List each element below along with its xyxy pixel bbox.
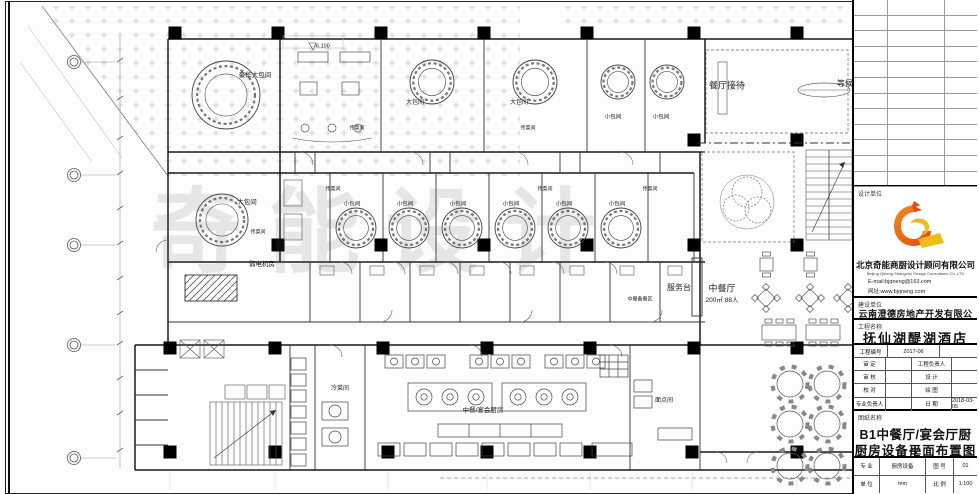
drafter-label: 绘 图 [912,384,952,396]
company-website: 网址:www.bjqneng.com [868,287,925,295]
sheet-no-value: 01 [954,458,977,475]
drawing-sheet: 奇能设计 -6.100豪华大包间大包间大包间小包间小包间餐厅接待等候传菜间传菜间… [0,0,979,494]
unit-label: 单 位 [854,476,880,494]
reception-furniture [706,50,850,133]
pm-label: 工程负责人 [912,358,952,370]
discipline-label: 专 业 [854,458,880,475]
revision-row [854,0,977,16]
lead-value [886,398,912,411]
sheet-name-line2: 厨房设备平面布置图 [854,440,977,459]
personnel-grid: 审 定 工程负责人 审 核 设 计 校 对 绘 图 专业负责人 日 期 [854,358,977,411]
storeroom-fixtures [320,266,682,275]
revision-col-divider [887,0,888,185]
company-logo [854,199,977,262]
drafter-value [952,384,977,396]
exterior-hatch [20,6,846,176]
approve-label: 审 定 [854,358,886,370]
design-unit-section: 设计单位 北京奇能商厨设计顾 [854,187,977,298]
build-unit-section: 建设单位 云南澄德房地产开发有限公司 [854,298,977,320]
grid-bubbles [68,56,81,465]
sheet-meta-grid: 专 业 厨房设备 图 号 01 单 位 mm 比 例 1:100 [854,458,977,493]
approve-value [886,358,912,370]
revision-row [854,125,977,141]
sheet-name-label: 图纸名称 [858,413,882,422]
review-label: 审 核 [854,371,886,383]
revision-row [854,78,977,94]
company-name-cn: 北京奇能商厨设计顾问有限公司 [854,259,977,271]
kitchen-equipment [291,258,702,466]
designer-label: 设 计 [912,371,952,383]
revision-row [854,62,977,78]
pm-value [952,358,977,370]
sheet-no-label: 图 号 [926,458,954,475]
project-no-label: 工程编号 [854,345,888,358]
scale-label: 比 例 [926,476,954,494]
revision-row [854,47,977,63]
floorplan-drawing [0,0,852,494]
designer-value [952,371,977,383]
project-no-extra [940,345,977,358]
check-label: 校 对 [854,384,886,396]
company-name-en: Beijing Qineng Shangchu Design Consultan… [859,271,972,276]
stairs-right [806,150,852,240]
project-name-section: 工程名称 抚仙湖醍湖酒店 [854,320,977,345]
title-block: 设计单位 北京奇能商厨设计顾 [852,0,978,494]
date-value: 2018-03-05 [952,398,977,411]
revision-col-divider [944,0,945,185]
scale-value: 1:100 [954,476,977,494]
company-logo-icon [884,199,948,257]
revision-row [854,140,977,156]
date-label: 日 期 [912,398,952,411]
discipline-value: 厨房设备 [880,458,926,475]
revision-row [854,94,977,110]
company-email: E-mail:bjqneng@163.com [868,279,931,285]
revision-row [854,172,977,188]
revision-table [854,0,977,187]
revision-row [854,16,977,32]
unit-value: mm [880,476,926,494]
check-value [886,384,912,396]
project-no-value: 2017-06 [888,345,940,358]
design-unit-label: 设计单位 [858,189,882,198]
revision-row [854,31,977,47]
sheet-name-section: 图纸名称 B1中餐厅/宴会厅厨房 厨房设备平面布置图 [854,411,977,458]
lead-label: 专业负责人 [854,398,886,411]
project-no-row: 工程编号 2017-06 [854,345,977,358]
review-value [886,371,912,383]
revision-row [854,156,977,172]
courtyard-planting [702,152,794,242]
revision-row [854,109,977,125]
